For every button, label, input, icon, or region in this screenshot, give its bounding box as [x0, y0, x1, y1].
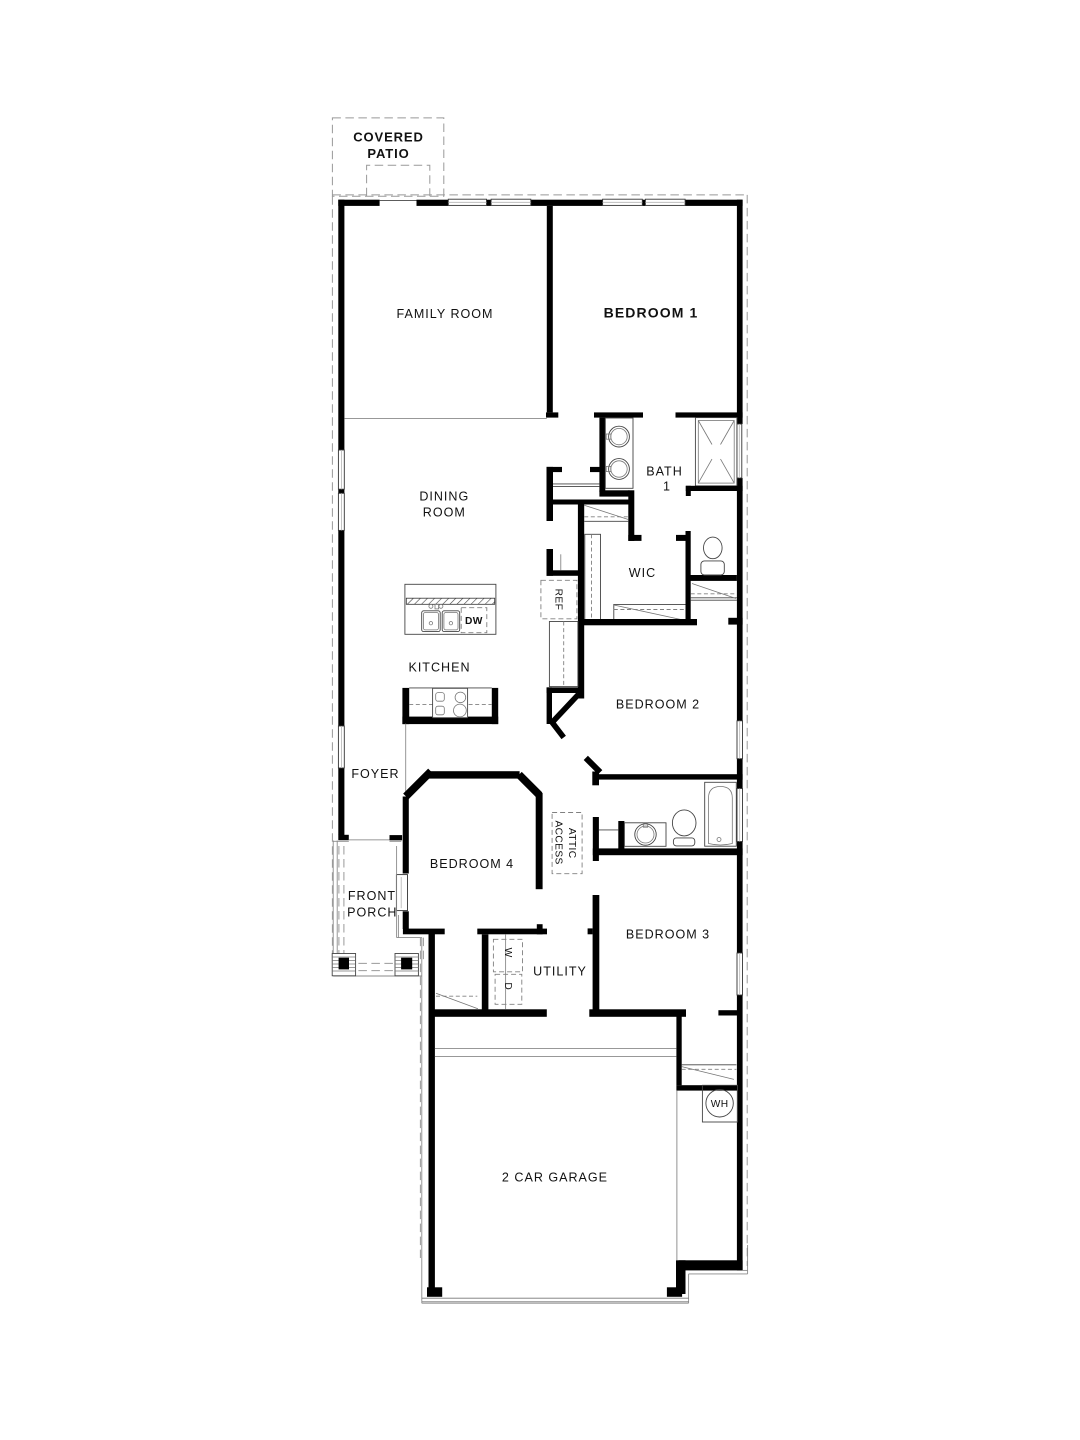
- svg-text:UTILITY: UTILITY: [533, 965, 587, 979]
- svg-text:BEDROOM 1: BEDROOM 1: [604, 305, 699, 321]
- svg-text:PORCH: PORCH: [347, 905, 397, 919]
- svg-text:BATH: BATH: [646, 464, 683, 478]
- svg-text:ACCESS: ACCESS: [552, 820, 563, 864]
- svg-text:WIC: WIC: [629, 566, 656, 580]
- svg-text:D: D: [502, 982, 513, 990]
- svg-text:REF: REF: [552, 589, 563, 611]
- svg-text:PATIO: PATIO: [367, 146, 409, 161]
- svg-text:ATTIC: ATTIC: [566, 828, 577, 859]
- svg-text:DINING: DINING: [419, 490, 469, 504]
- svg-text:DW: DW: [465, 616, 483, 627]
- svg-text:ROOM: ROOM: [423, 506, 466, 520]
- svg-text:FOYER: FOYER: [351, 767, 399, 781]
- svg-text:FAMILY ROOM: FAMILY ROOM: [397, 307, 494, 321]
- svg-text:2 CAR GARAGE: 2 CAR GARAGE: [502, 1171, 608, 1185]
- svg-text:BEDROOM 4: BEDROOM 4: [430, 857, 514, 871]
- svg-text:WH: WH: [711, 1099, 729, 1110]
- svg-text:BEDROOM 2: BEDROOM 2: [616, 697, 700, 711]
- svg-text:1: 1: [663, 480, 671, 494]
- svg-text:COVERED: COVERED: [353, 129, 424, 144]
- svg-text:KITCHEN: KITCHEN: [408, 661, 470, 675]
- svg-text:BEDROOM 3: BEDROOM 3: [626, 927, 710, 941]
- svg-text:FRONT: FRONT: [348, 889, 396, 903]
- svg-text:W: W: [502, 948, 513, 958]
